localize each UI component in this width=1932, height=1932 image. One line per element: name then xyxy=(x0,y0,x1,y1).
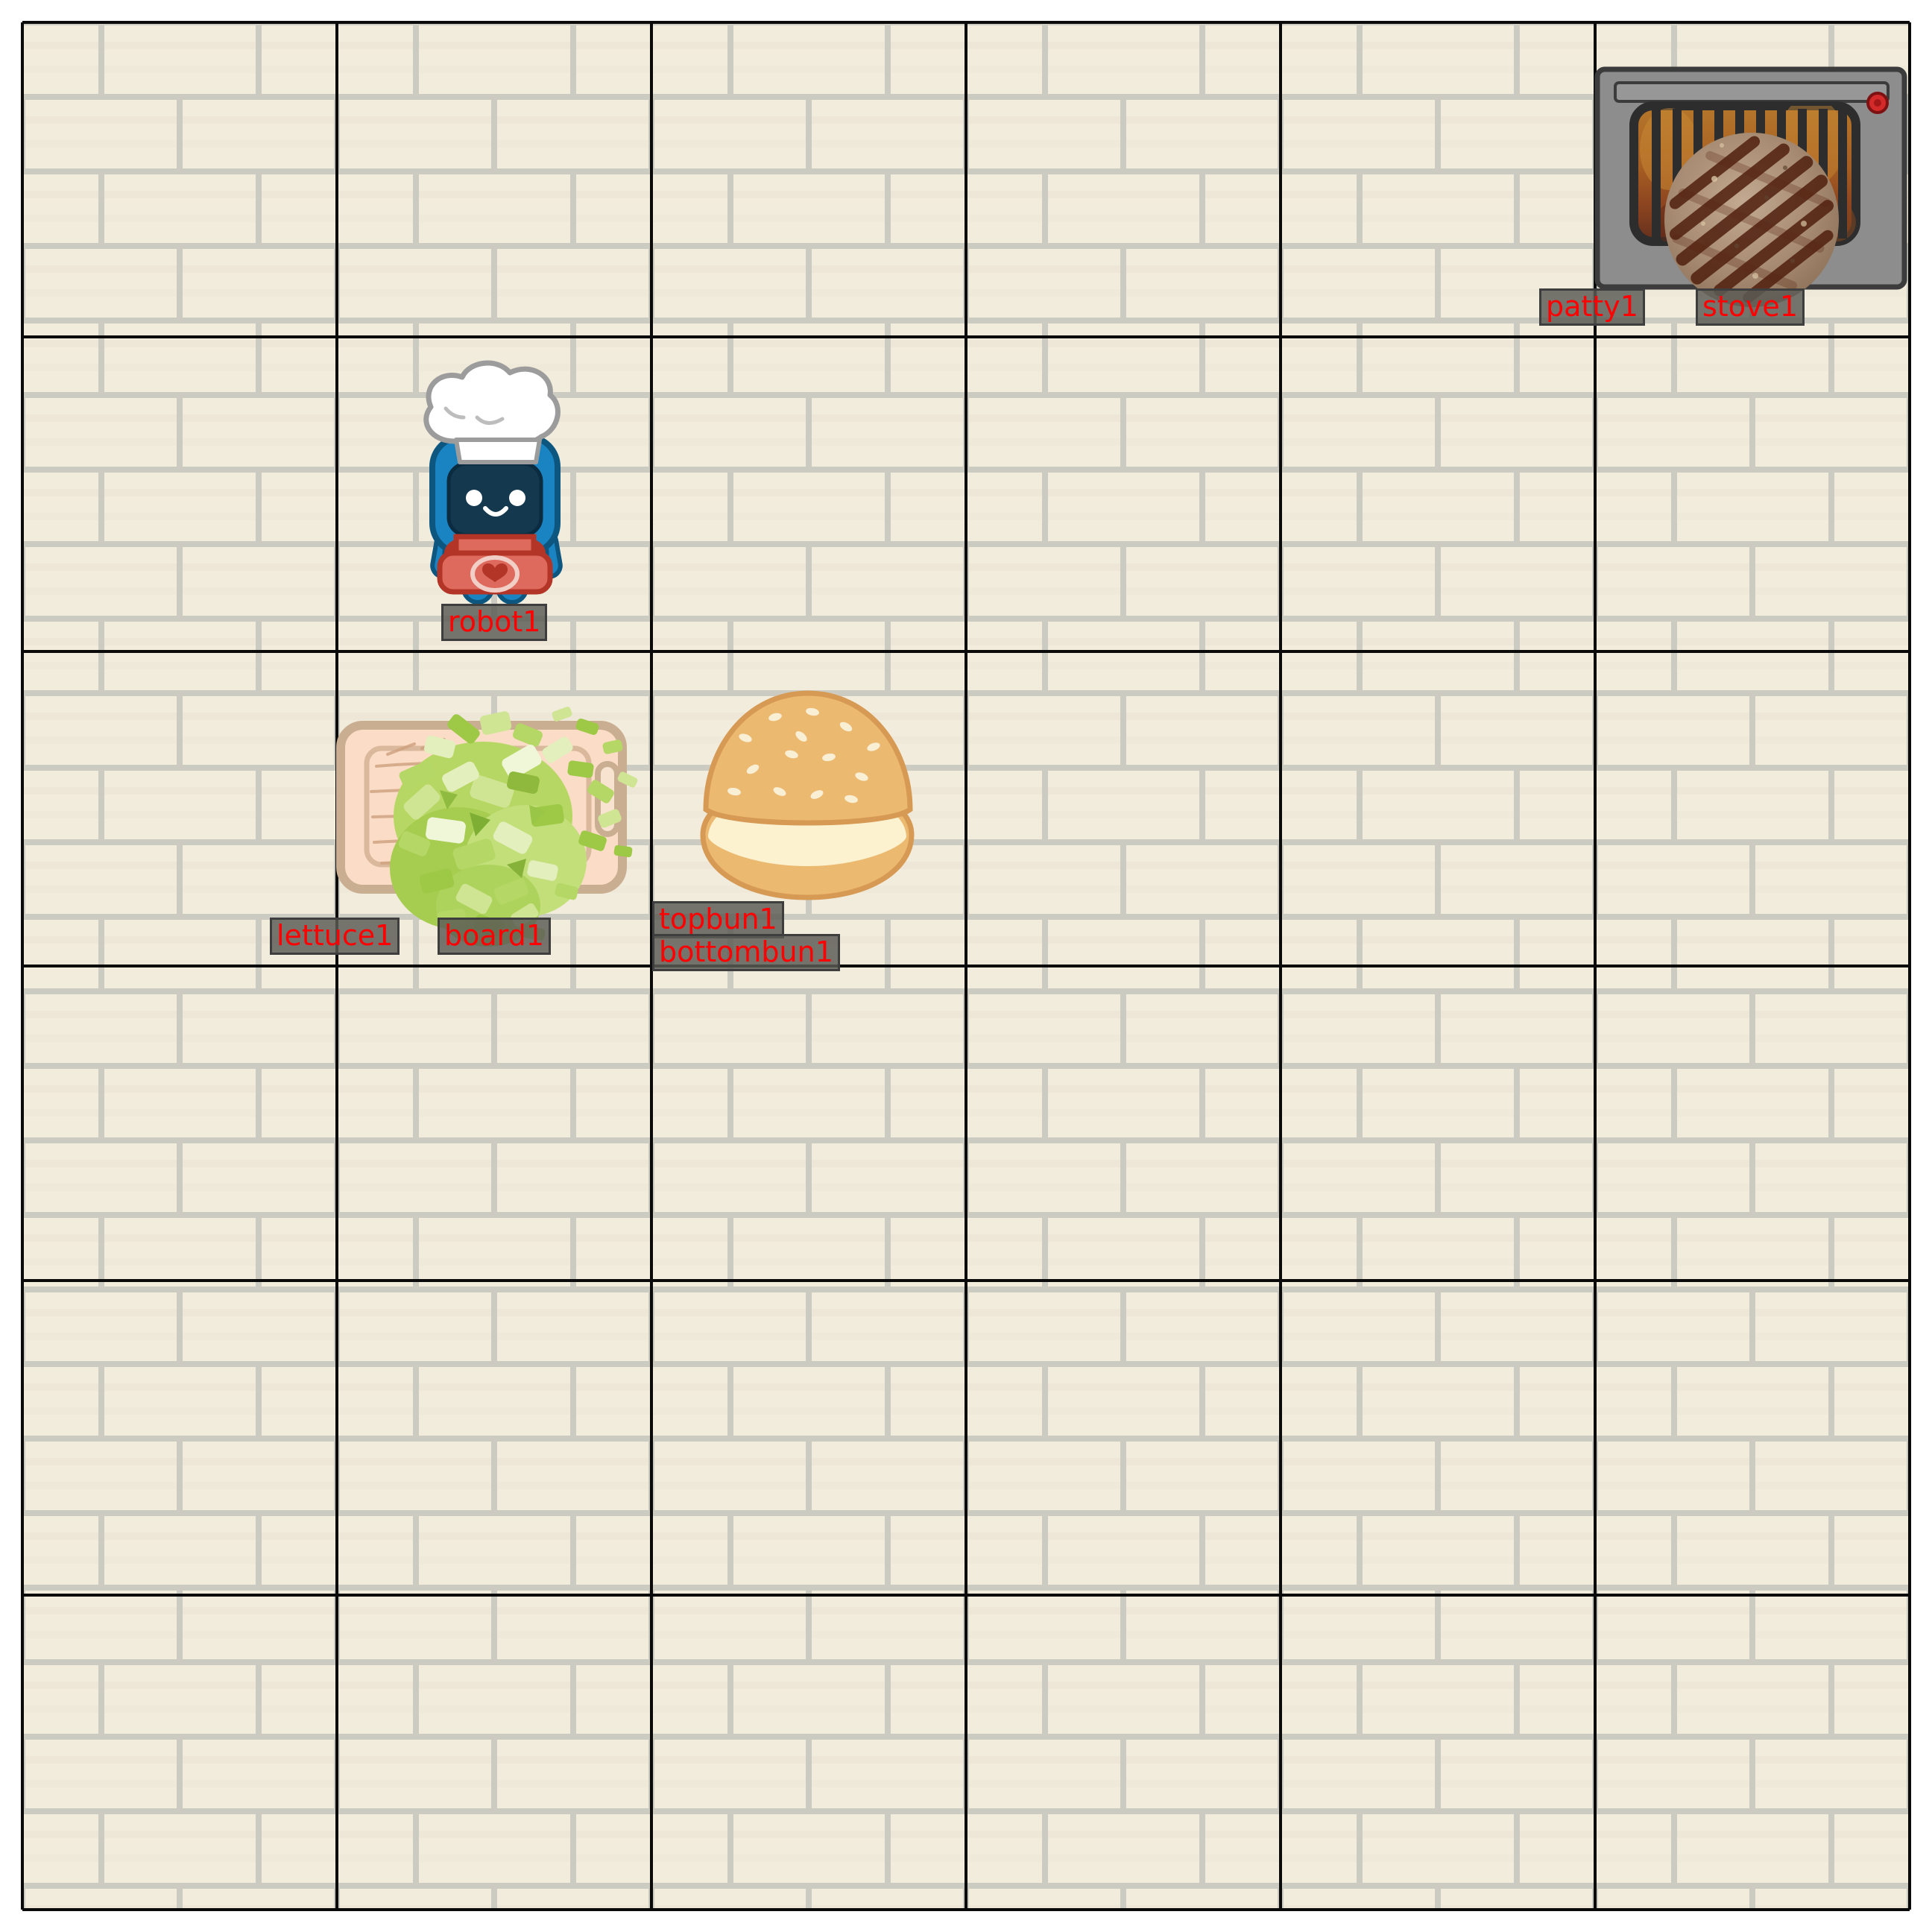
robot-eye-right xyxy=(509,490,525,506)
robot-sprite[interactable] xyxy=(426,363,562,602)
robot-face-screen xyxy=(449,464,541,535)
kitchen-scene: patty1 stove1 robot1 lettuce1 board1 top… xyxy=(0,0,1932,1932)
bottombun-label: bottombun1 xyxy=(652,934,840,971)
robot-label: robot1 xyxy=(441,604,547,641)
topbun-label: topbun1 xyxy=(652,901,784,938)
robot-eye-left xyxy=(466,490,482,506)
stove-label: stove1 xyxy=(1696,288,1805,326)
lettuce-label: lettuce1 xyxy=(270,918,400,955)
board-label: board1 xyxy=(438,918,551,955)
stove-led-core xyxy=(1874,99,1881,107)
patty-label: patty1 xyxy=(1539,288,1645,326)
robot-apron xyxy=(440,537,550,592)
stove-top-vent xyxy=(1615,83,1888,101)
